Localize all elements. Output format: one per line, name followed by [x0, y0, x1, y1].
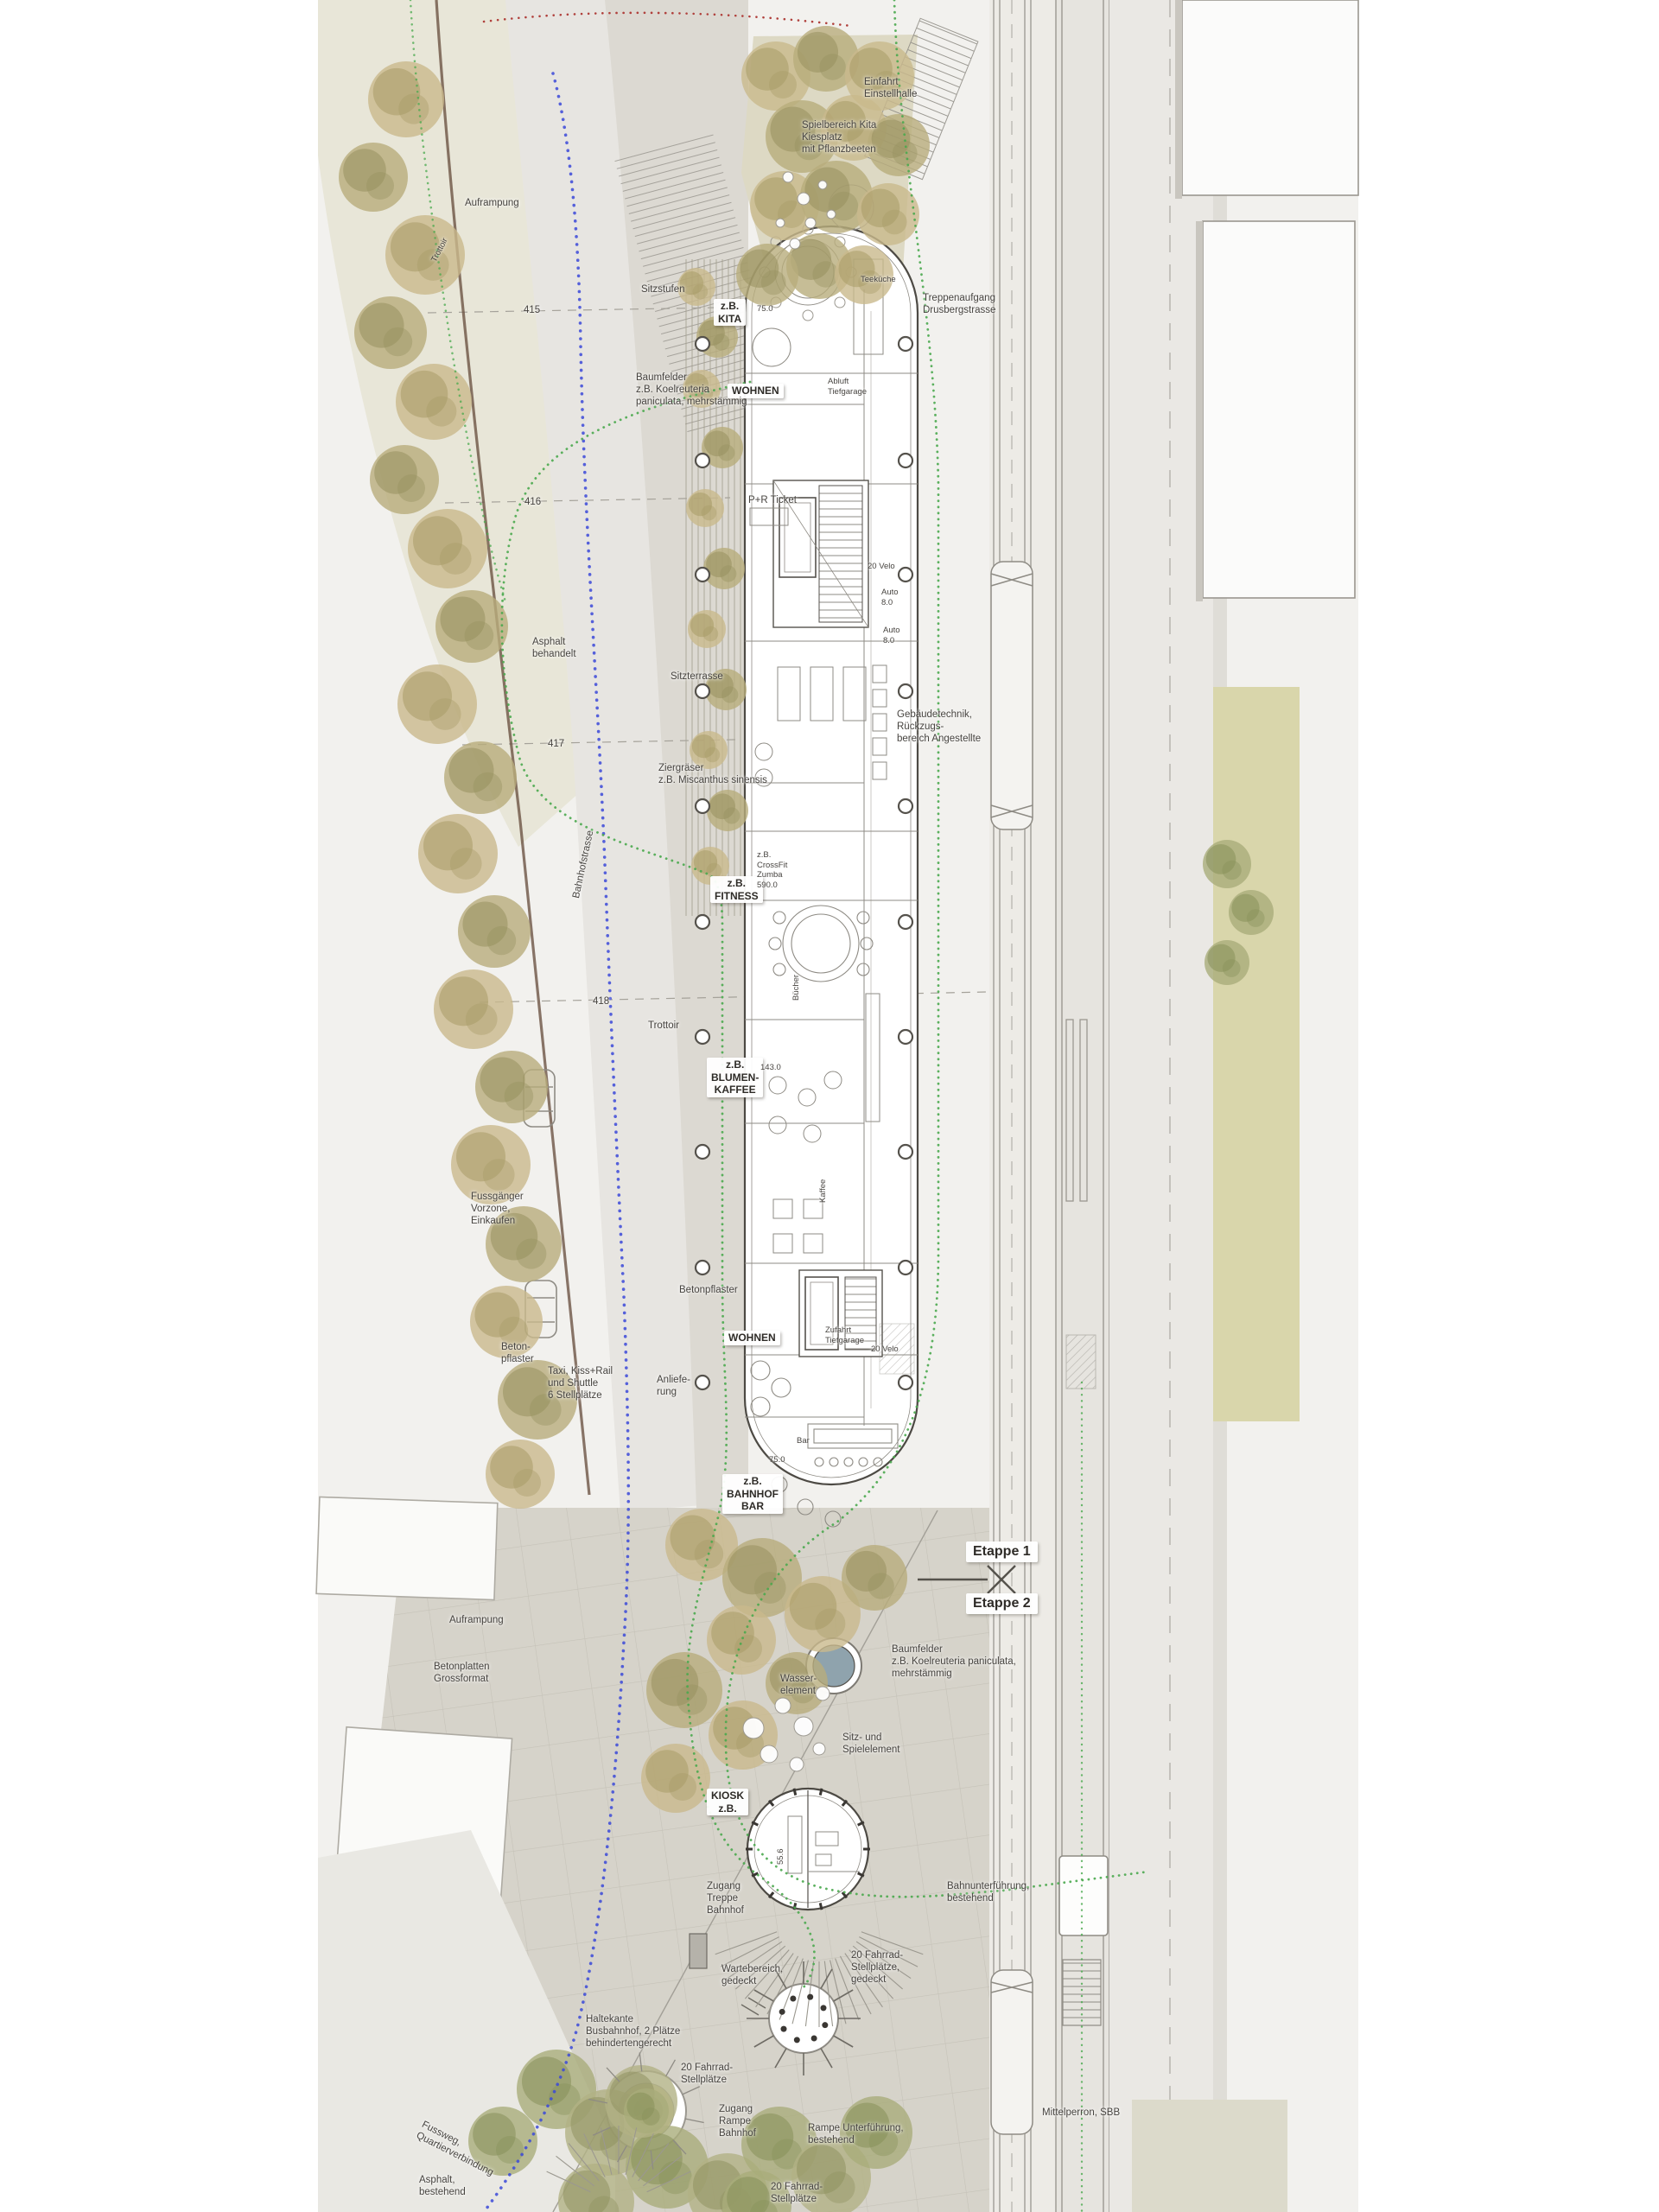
- platform-structure: [1066, 1335, 1096, 1389]
- kiosk-building: [747, 1789, 868, 1910]
- train-top: [991, 562, 1033, 829]
- bike-circle: [769, 1984, 838, 2053]
- site-plan-drawing: [0, 0, 1659, 2212]
- green-strip-bottomright: [1132, 2100, 1287, 2212]
- bus-shelter: [690, 1934, 707, 1968]
- green-strip-right: [1213, 687, 1300, 1421]
- stair-core-top: [773, 480, 868, 627]
- platform-canopy: [1059, 1856, 1108, 1935]
- garage-ramp: [880, 1324, 914, 1374]
- building-left-1: [316, 1497, 498, 1599]
- train-bottom: [991, 1970, 1033, 2134]
- building-right-1: [1175, 0, 1358, 199]
- building-right-2: [1196, 221, 1355, 601]
- platform-stair-hatch: [1063, 1960, 1101, 2025]
- stair-core-bottom: [799, 1270, 882, 1357]
- site-plan-page: { "plan": { "type": "architectural-site-…: [0, 0, 1659, 2212]
